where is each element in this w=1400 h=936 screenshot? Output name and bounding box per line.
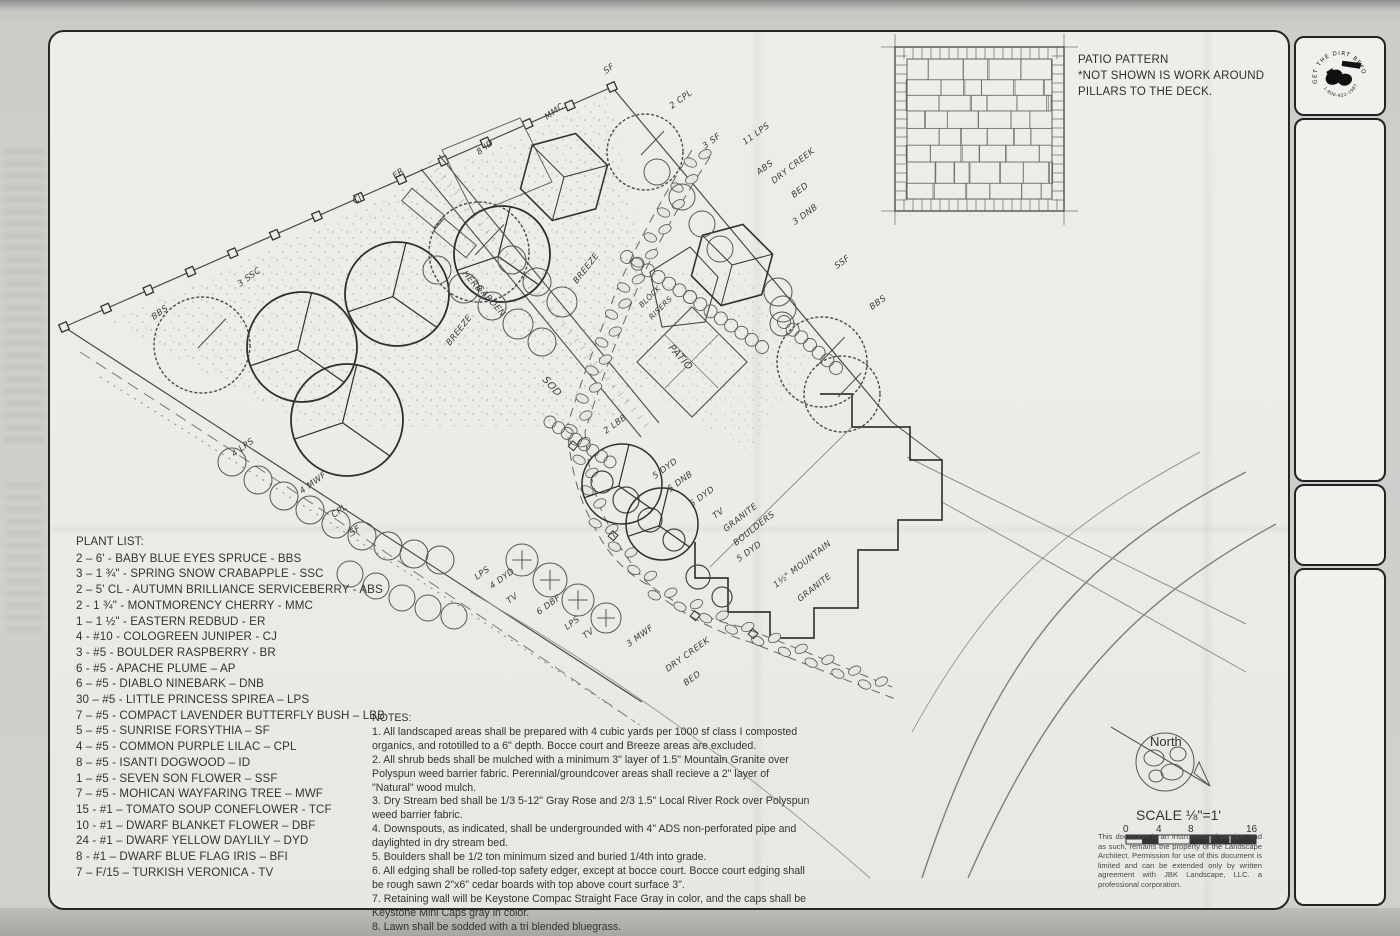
svg-text:2 CPL: 2 CPL [668,88,695,111]
plant-list: PLANT LIST: 2 – 6' - BABY BLUE EYES SPRU… [76,534,406,880]
note-item: 6. All edging shall be rolled-top safety… [372,865,810,893]
svg-text:LPS: LPS [563,615,582,633]
note-item: 2. All shrub beds shall be mulched with … [372,754,810,796]
plant-list-item: 7 – #5 - MOHICAN WAYFARING TREE – MWF [76,786,406,802]
svg-text:3 MWF: 3 MWF [625,623,656,649]
note-item: 4. Downspouts, as indicated, shall be un… [372,823,810,851]
svg-text:GRANITE: GRANITE [796,571,834,604]
patio-pattern-note: PILLARS TO THE DECK. [1078,84,1308,100]
svg-text:3 DNB: 3 DNB [791,202,820,227]
notes-items: 1. All landscaped areas shall be prepare… [372,726,810,935]
note-item: 7. Retaining wall will be Keystone Compa… [372,893,810,921]
plant-list-item: 3 – 1 ¾" - SPRING SNOW CRABAPPLE - SSC [76,566,406,582]
svg-text:CPL: CPL [330,502,350,520]
patio-pattern-note: *NOT SHOWN IS WORK AROUND [1078,68,1308,84]
sheet-info-panel: SHEET 1 OF 1 DATE 9.15.14 DRAWN TBW CHEC… [1294,484,1386,566]
scan-bleedthrough-smudge [6,480,42,640]
svg-text:BBS: BBS [868,293,889,312]
svg-text:SSF: SSF [833,254,852,272]
svg-text:DRY CREEK: DRY CREEK [770,146,818,187]
plant-list-item: 6 – #5 - DIABLO NINEBARK – DNB [76,676,406,692]
scale-label: SCALE ⅛"=1' [1136,807,1221,823]
plant-list-item: 3 - #5 - BOULDER RASPBERRY - BR [76,645,406,661]
plant-list-item: 4 - #10 - COLOGREEN JUNIPER - CJ [76,629,406,645]
plant-list-item: 15 - #1 – TOMATO SOUP CONEFLOWER - TCF [76,802,406,818]
plant-list-item: 2 – 6' - BABY BLUE EYES SPRUCE - BBS [76,551,406,567]
svg-text:SF: SF [602,62,617,77]
plant-list-item: 10 - #1 – DWARF BLANKET FLOWER – DBF [76,818,406,834]
svg-text:LPS: LPS [473,565,492,583]
sheet-border: HERBGARDENBREEZEBREEZESODPATIOBLOCKRISER… [48,30,1290,910]
svg-text:4 LPS: 4 LPS [230,436,257,459]
plant-list-item: 5 – #5 - SUNRISE FORSYTHIA – SF [76,723,406,739]
plant-list-item: 1 – #5 - SEVEN SON FLOWER – SSF [76,771,406,787]
plant-list-item: 6 - #5 - APACHE PLUME – AP [76,661,406,677]
firm-info-panel: jbk 303-751-0192 303-368-1509 FAX jbkllc… [1294,568,1386,906]
svg-text:11 LPS: 11 LPS [741,121,772,148]
svg-text:5 DYD: 5 DYD [651,457,680,482]
plant-list-item: 4 – #5 - COMMON PURPLE LILAC – CPL [76,739,406,755]
dig-safe-logo-panel: GET THE DIRT BEFORE YOU DIG 1-800-922-19… [1294,36,1386,116]
note-item: 1. All landscaped areas shall be prepare… [372,726,810,754]
scan-bleedthrough-smudge [4,150,44,450]
svg-text:DRY CREEK: DRY CREEK [664,635,713,674]
plant-list-item: 30 – #5 - LITTLE PRINCESS SPIREA – LPS [76,692,406,708]
note-item: 5. Boulders shall be 1/2 ton minimum siz… [372,851,810,865]
patio-pattern-caption: PATIO PATTERN *NOT SHOWN IS WORK AROUND … [1078,52,1308,100]
plant-list-title: PLANT LIST: [76,534,406,550]
notes-block: NOTES: 1. All landscaped areas shall be … [372,712,810,935]
plant-list-items: 2 – 6' - BABY BLUE EYES SPRUCE - BBS3 – … [76,551,406,881]
disclaimer-text: This document is an instrument of servic… [1098,832,1262,890]
plant-list-item: 1 – 1 ½" - EASTERN REDBUD - ER [76,614,406,630]
svg-text:5 DNB: 5 DNB [666,469,695,494]
svg-text:3 SF: 3 SF [701,132,723,152]
svg-text:TV: TV [711,506,727,521]
note-item: 3. Dry Stream bed shall be 1/3 5-12" Gra… [372,795,810,823]
svg-text:BED: BED [790,181,811,201]
svg-text:BED: BED [682,669,703,688]
svg-text:TV: TV [505,591,521,606]
project-title-panel: Malabarba Residence [1294,118,1386,482]
note-item: 8. Lawn shall be sodded with a tri blend… [372,921,810,935]
patio-pattern-title: PATIO PATTERN [1078,52,1308,68]
scanned-drawing-page: HERBGARDENBREEZEBREEZESODPATIOBLOCKRISER… [0,0,1400,936]
plant-list-item: 7 – #5 - COMPACT LAVENDER BUTTERFLY BUSH… [76,708,406,724]
notes-title: NOTES: [372,712,810,726]
plant-list-item: 7 – F/15 – TURKISH VERONICA - TV [76,865,406,881]
plant-list-item: 2 - 1 ¾" - MONTMORENCY CHERRY - MMC [76,598,406,614]
svg-text:5 DYD: 5 DYD [688,485,717,510]
plant-list-item: 2 – 5' CL - AUTUMN BRILLIANCE SERVICEBER… [76,582,406,598]
dig-safe-stamp: GET THE DIRT BEFORE YOU DIG 1-800-922-19… [1296,38,1380,110]
svg-text:4 DYD: 4 DYD [488,567,517,592]
svg-text:4 MWF: 4 MWF [298,470,329,496]
plant-list-item: 8 - #1 – DWARF BLUE FLAG IRIS – BFI [76,849,406,865]
plant-list-item: 24 - #1 – DWARF YELLOW DAYLILY – DYD [76,833,406,849]
plant-list-item: 8 – #5 - ISANTI DOGWOOD – ID [76,755,406,771]
